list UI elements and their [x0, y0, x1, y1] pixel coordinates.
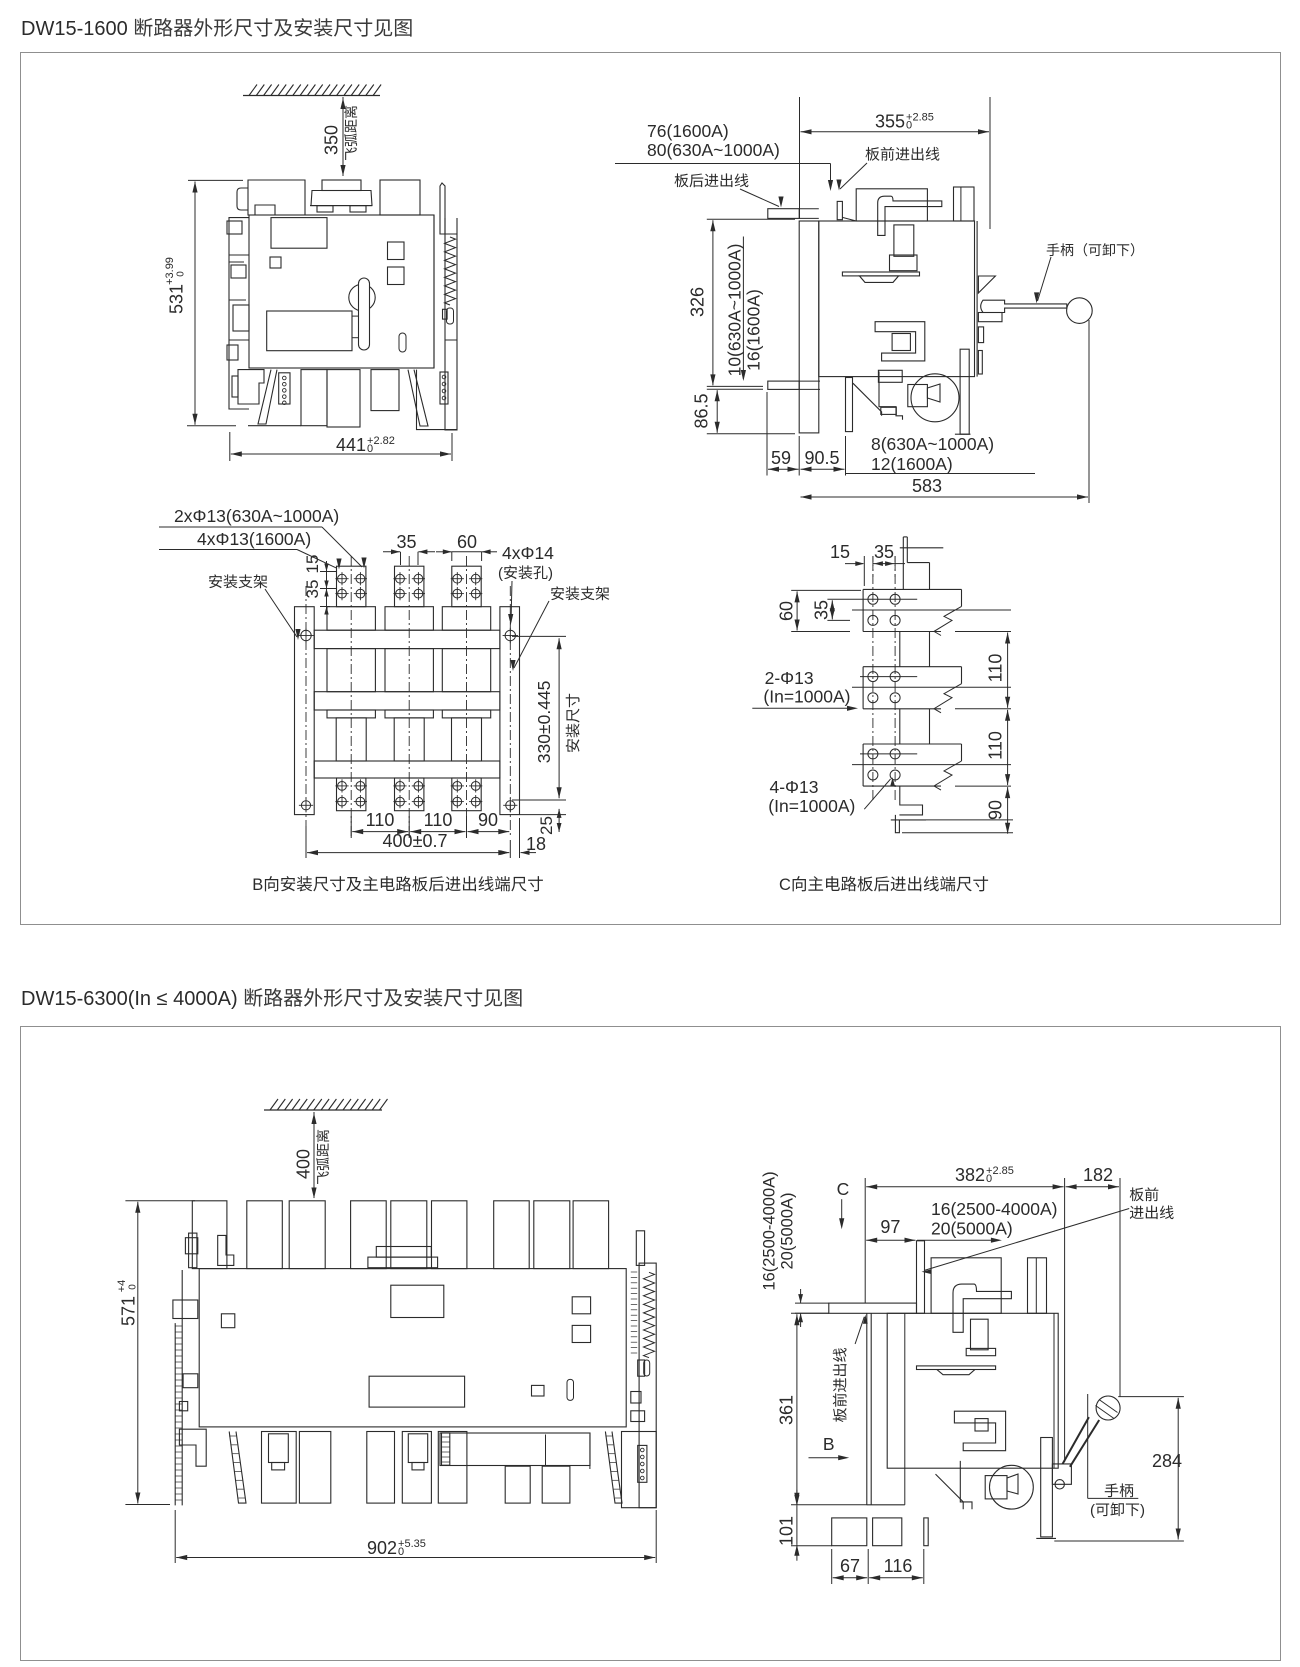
svg-text:+4: +4: [116, 1280, 128, 1293]
svg-text:110: 110: [424, 810, 453, 830]
svg-text:80(630A~1000A): 80(630A~1000A): [647, 140, 780, 160]
svg-text:330±0.445: 330±0.445: [534, 681, 554, 764]
svg-text:C: C: [837, 1179, 850, 1199]
svg-text:10(630A~1000A): 10(630A~1000A): [724, 244, 744, 377]
svg-text:583: 583: [912, 476, 942, 496]
svg-text:76(1600A): 76(1600A): [647, 121, 729, 141]
svg-text:110: 110: [366, 810, 395, 830]
svg-text:35: 35: [396, 532, 416, 552]
svg-text:101: 101: [776, 1516, 796, 1546]
svg-text:355: 355: [875, 112, 905, 132]
svg-text:326: 326: [687, 287, 707, 317]
svg-text:B: B: [823, 1434, 835, 1454]
svg-text:97: 97: [880, 1217, 900, 1237]
svg-text:90: 90: [478, 810, 498, 830]
svg-text:0: 0: [398, 1546, 404, 1558]
svg-text:0: 0: [128, 1284, 139, 1290]
svg-text:902: 902: [367, 1538, 397, 1558]
svg-text:16(1600A): 16(1600A): [743, 289, 763, 371]
svg-text:110: 110: [985, 654, 1005, 683]
svg-text:B: B: [252, 876, 263, 894]
svg-text:): ): [1140, 1502, 1145, 1519]
svg-text:67: 67: [840, 1556, 860, 1576]
svg-text:90: 90: [985, 800, 1005, 820]
svg-text:350: 350: [321, 125, 341, 155]
svg-text:25: 25: [537, 816, 556, 835]
svg-text:16(2500-4000A): 16(2500-4000A): [931, 1199, 1057, 1219]
svg-text:(: (: [1090, 1502, 1095, 1519]
svg-text:60: 60: [776, 601, 796, 621]
svg-text:(: (: [498, 565, 503, 582]
svg-text:182: 182: [1083, 1165, 1113, 1185]
svg-text:0: 0: [906, 120, 912, 132]
svg-text:4-Φ13: 4-Φ13: [770, 777, 819, 797]
svg-text:0: 0: [986, 1173, 992, 1185]
svg-text:+3.99: +3.99: [164, 257, 176, 285]
svg-text:0: 0: [176, 271, 187, 277]
svg-text:2xΦ13(630A~1000A): 2xΦ13(630A~1000A): [174, 506, 339, 526]
svg-text:15: 15: [830, 542, 850, 562]
svg-text:DW15-1600: DW15-1600: [21, 18, 128, 40]
svg-text:20(5000A): 20(5000A): [778, 1192, 796, 1269]
svg-text:60: 60: [457, 532, 477, 552]
svg-text:(In=1000A): (In=1000A): [768, 796, 855, 816]
svg-text:18: 18: [526, 834, 546, 854]
svg-text:400±0.7: 400±0.7: [383, 831, 448, 851]
svg-text:2-Φ13: 2-Φ13: [765, 668, 814, 688]
svg-text:4xΦ14: 4xΦ14: [502, 543, 554, 563]
svg-text:116: 116: [884, 1556, 913, 1576]
svg-text:16(2500-4000A): 16(2500-4000A): [760, 1171, 778, 1290]
svg-text:35: 35: [874, 542, 894, 562]
svg-text:(In=1000A): (In=1000A): [763, 687, 850, 707]
svg-text:15: 15: [303, 555, 322, 574]
svg-text:571: 571: [118, 1296, 138, 1326]
svg-text:90.5: 90.5: [804, 448, 839, 468]
svg-text:59: 59: [771, 448, 791, 468]
svg-text:110: 110: [985, 731, 1005, 760]
svg-text:20(5000A): 20(5000A): [931, 1219, 1013, 1239]
svg-text:12(1600A): 12(1600A): [871, 454, 953, 474]
svg-text:284: 284: [1152, 1451, 1182, 1471]
svg-text:86.5: 86.5: [691, 393, 711, 428]
svg-text:35: 35: [303, 580, 322, 599]
svg-text:4xΦ13(1600A): 4xΦ13(1600A): [197, 529, 311, 549]
svg-text:382: 382: [955, 1165, 985, 1185]
svg-text:400: 400: [293, 1149, 313, 1179]
svg-text:361: 361: [776, 1395, 796, 1425]
svg-text:441: 441: [336, 435, 366, 455]
svg-text:): ): [548, 565, 553, 582]
svg-text:C: C: [779, 876, 791, 894]
svg-text:531: 531: [166, 284, 186, 314]
svg-text:0: 0: [367, 443, 373, 455]
svg-text:35: 35: [811, 600, 831, 620]
svg-text:8(630A~1000A): 8(630A~1000A): [871, 434, 994, 454]
svg-text:DW15-6300(In ≤ 4000A): DW15-6300(In ≤ 4000A): [21, 988, 238, 1010]
